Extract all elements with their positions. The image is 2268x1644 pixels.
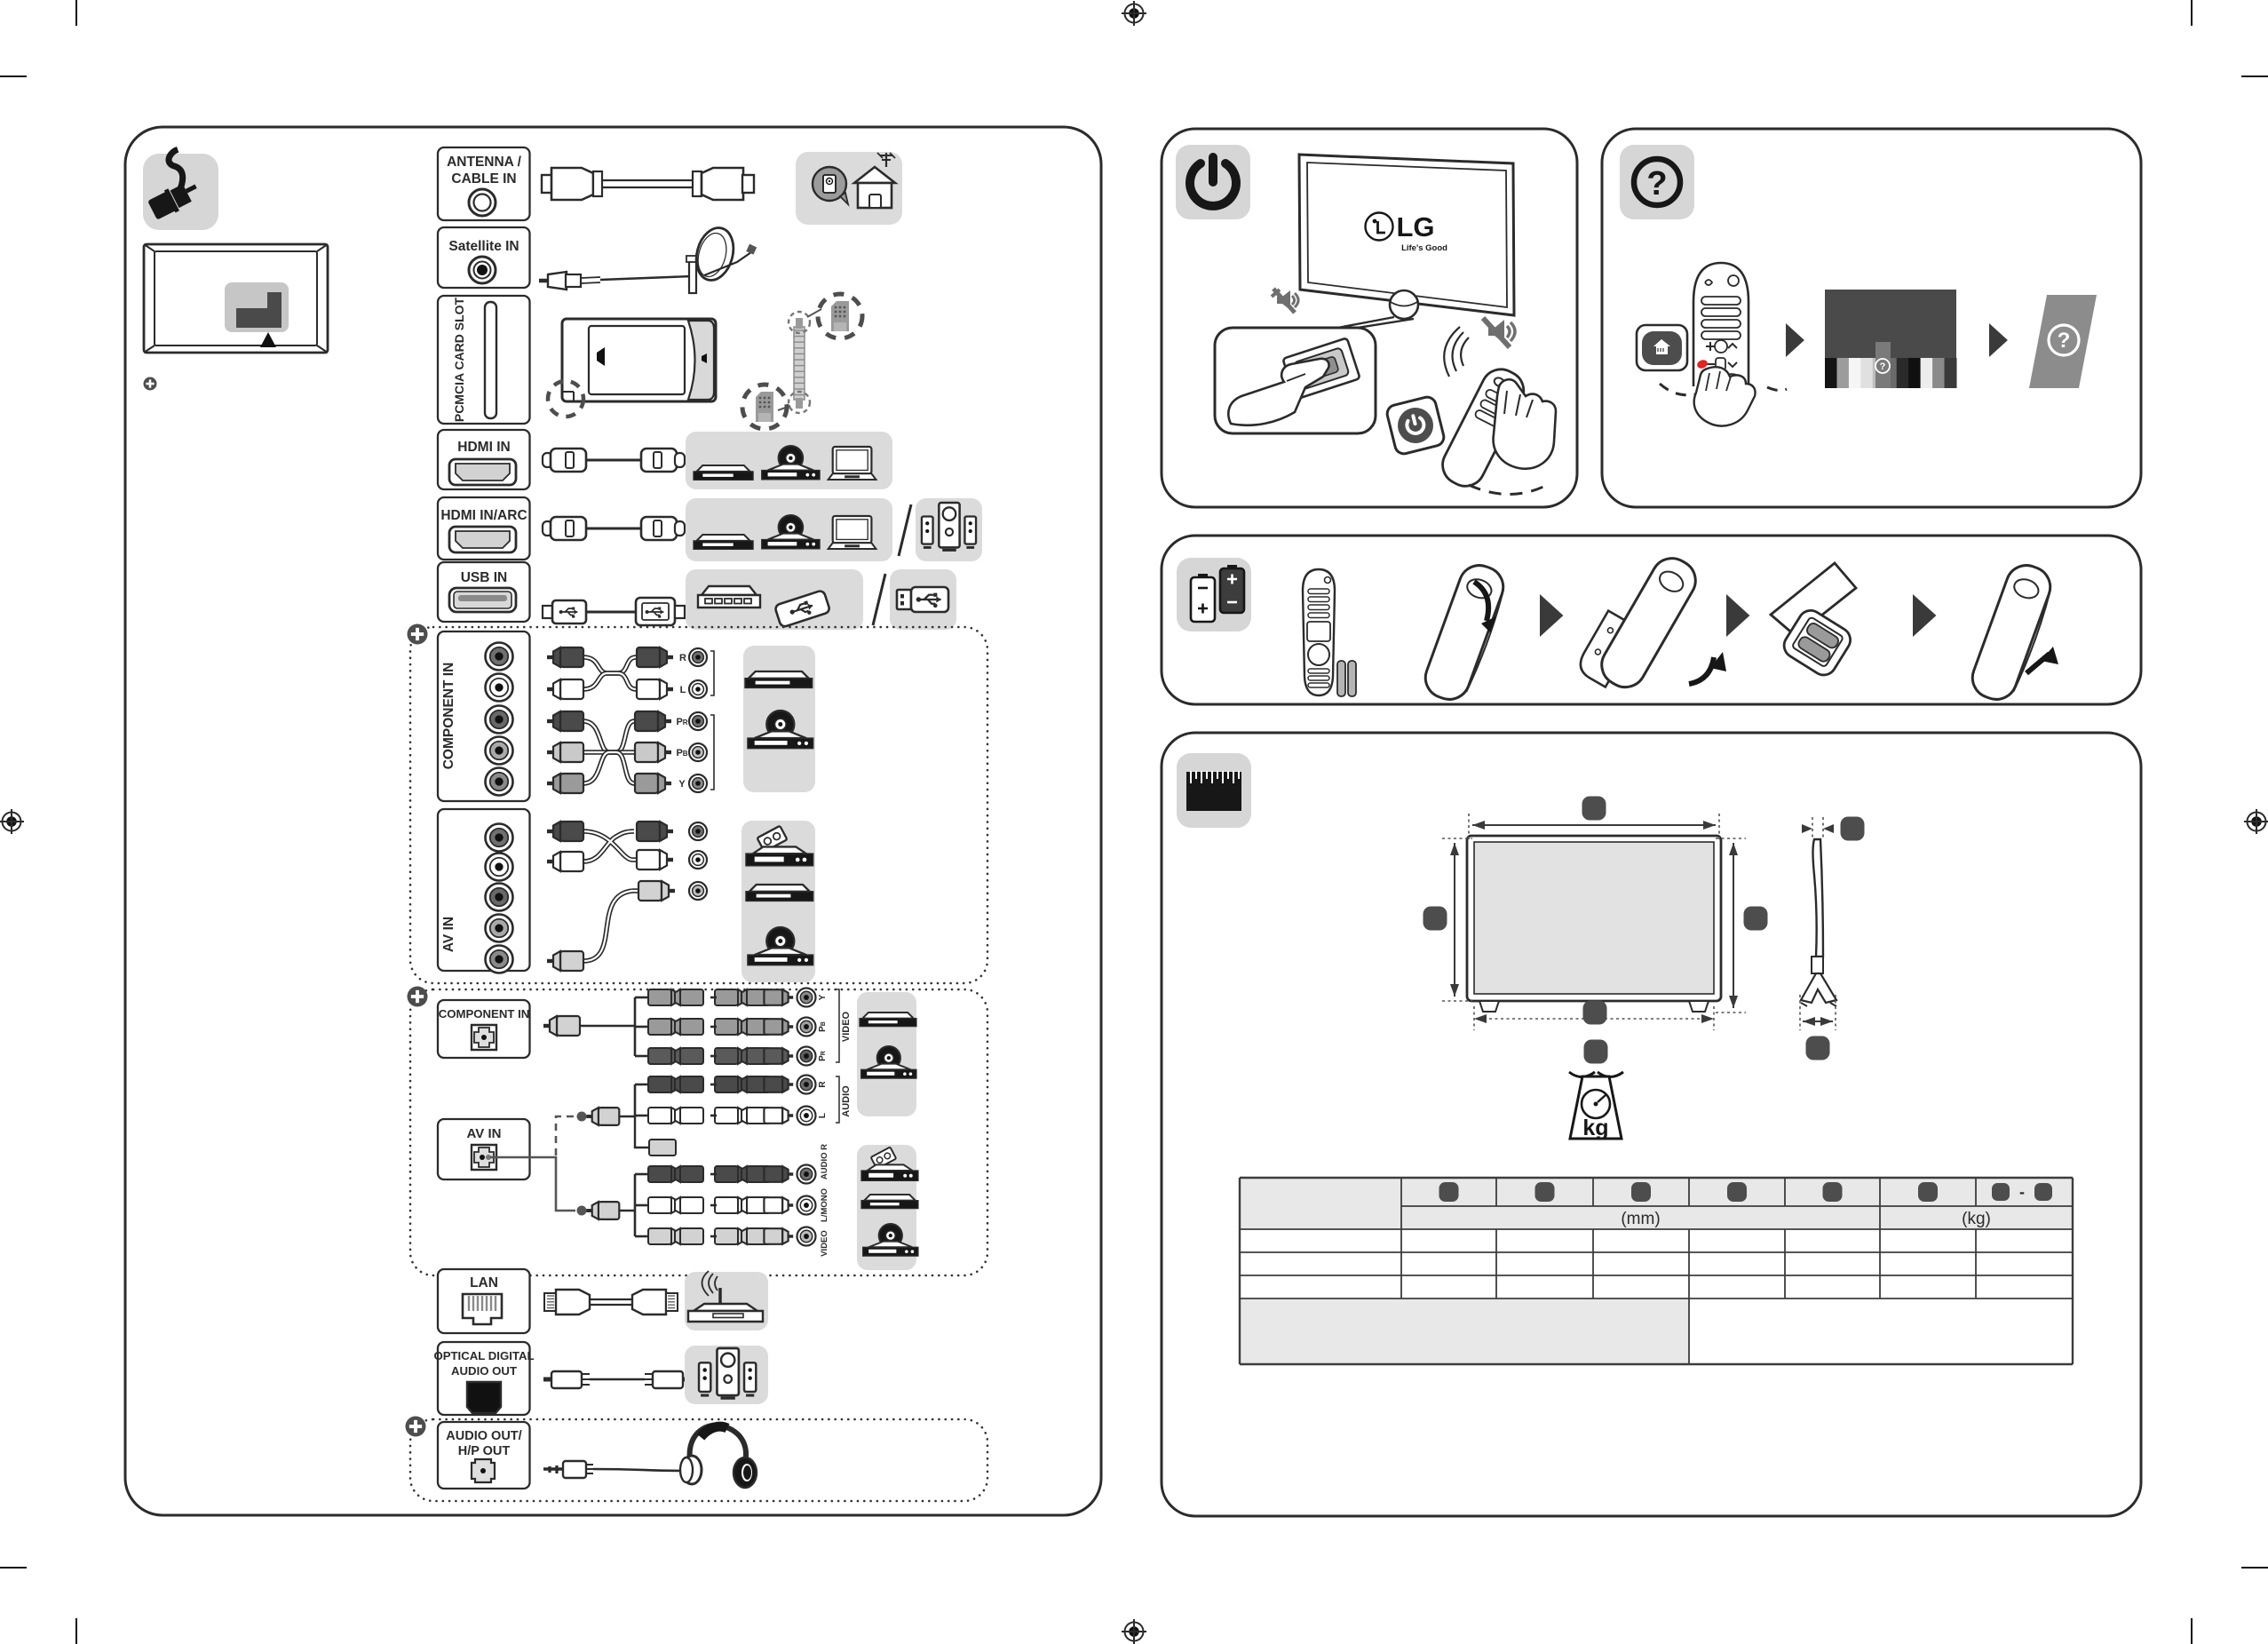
- svg-text:L/MONO: L/MONO: [820, 1188, 829, 1222]
- svg-text:?: ?: [1646, 165, 1667, 203]
- svg-text:R: R: [679, 653, 686, 663]
- svg-text:?: ?: [1880, 361, 1886, 372]
- svg-text:HDMI IN: HDMI IN: [457, 440, 510, 455]
- svg-text:Y: Y: [678, 779, 686, 790]
- svg-text:AUDIO R: AUDIO R: [820, 1144, 829, 1179]
- svg-text:COMPONENT IN: COMPONENT IN: [439, 1007, 530, 1021]
- svg-text:?: ?: [2058, 329, 2071, 353]
- svg-text:AUDIO OUT: AUDIO OUT: [451, 1364, 517, 1378]
- svg-text:PB: PB: [676, 748, 687, 758]
- svg-text:LAN: LAN: [470, 1275, 498, 1291]
- svg-text:L: L: [680, 685, 686, 695]
- svg-text:VIDEO: VIDEO: [841, 1011, 852, 1042]
- svg-text:AUDIO OUT/: AUDIO OUT/: [446, 1429, 521, 1443]
- svg-text:PCMCIA CARD SLOT: PCMCIA CARD SLOT: [452, 297, 466, 422]
- svg-text:-: -: [2019, 1183, 2025, 1201]
- svg-text:AV IN: AV IN: [441, 917, 456, 952]
- svg-text:VIDEO: VIDEO: [820, 1230, 829, 1257]
- svg-text:ANTENNA /: ANTENNA /: [447, 155, 522, 170]
- svg-text:H/P OUT: H/P OUT: [458, 1444, 511, 1458]
- svg-text:PR: PR: [676, 717, 687, 727]
- svg-text:HDMI IN/ARC: HDMI IN/ARC: [440, 508, 527, 523]
- svg-text:OPTICAL DIGITAL: OPTICAL DIGITAL: [433, 1349, 534, 1362]
- svg-text:L: L: [818, 1113, 828, 1118]
- svg-text:AV IN: AV IN: [467, 1126, 502, 1141]
- svg-text:AUDIO: AUDIO: [841, 1085, 852, 1117]
- svg-text:Life's Good: Life's Good: [1401, 243, 1447, 253]
- svg-text:USB IN: USB IN: [461, 570, 508, 585]
- svg-text:R: R: [818, 1081, 828, 1088]
- svg-text:(kg): (kg): [1962, 1210, 1991, 1228]
- svg-text:CABLE IN: CABLE IN: [451, 171, 516, 187]
- svg-text:(mm): (mm): [1621, 1210, 1660, 1228]
- svg-text:Y: Y: [818, 994, 828, 1000]
- svg-text:COMPONENT IN: COMPONENT IN: [441, 663, 456, 770]
- svg-text:Satellite IN: Satellite IN: [448, 239, 519, 254]
- svg-text:kg: kg: [1582, 1116, 1608, 1140]
- svg-text:LG: LG: [1396, 211, 1434, 242]
